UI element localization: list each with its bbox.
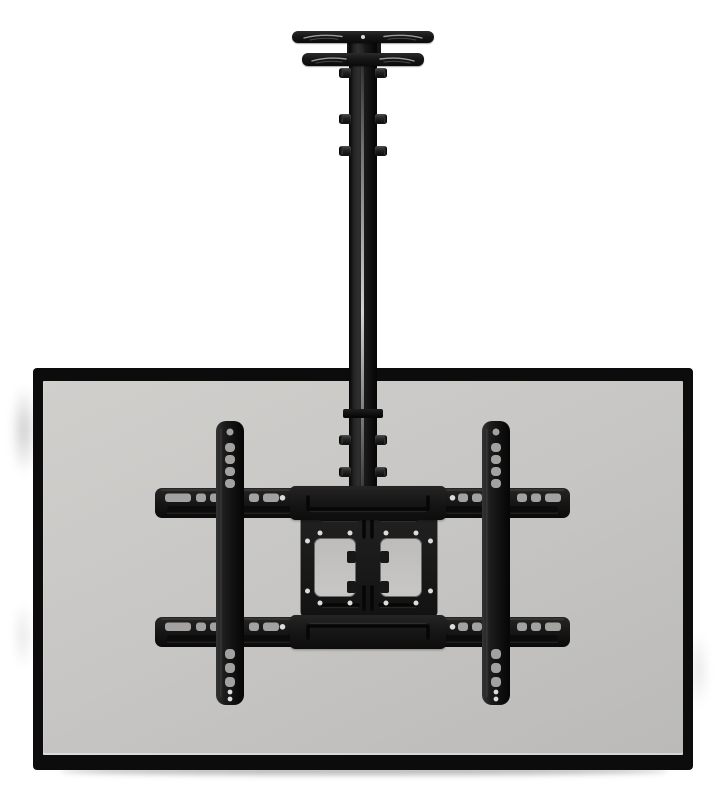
ceiling-screw-hole [361, 35, 365, 39]
bracket-rail-left [216, 421, 244, 705]
crossbar-center-cover-upper [290, 486, 446, 520]
pole-bolt [339, 146, 351, 156]
bracket-rail-right [482, 421, 510, 705]
pole-bolt [375, 114, 387, 124]
pole-bolt [339, 68, 351, 78]
window-tab [380, 581, 389, 593]
cover-groove-graphic [290, 486, 446, 520]
pole-clamp-collar [343, 409, 383, 418]
vesa-adapter-plate [300, 505, 438, 619]
window-tab [347, 551, 356, 563]
window-tab [380, 551, 389, 563]
ceiling-arm-slot-glints [302, 53, 424, 66]
crossbar-center-cover-lower [290, 615, 446, 649]
pole-bolt [375, 146, 387, 156]
pole-bolt [375, 68, 387, 78]
pole-bolt [375, 435, 387, 445]
rail-graphic [216, 421, 244, 705]
pole-bolt [339, 114, 351, 124]
pole-highlight [361, 42, 364, 506]
ceiling-plate-arm-lower [302, 53, 424, 66]
pole-bolt [375, 467, 387, 477]
rail-graphic [482, 421, 510, 705]
pole-bolt [339, 435, 351, 445]
pole-bolt [339, 467, 351, 477]
drop-pole [349, 42, 377, 506]
window-tab [347, 581, 356, 593]
vesa-plate-graphic [300, 505, 438, 619]
soft-shadow-left-lower [14, 600, 32, 670]
product-image [0, 0, 725, 803]
cover-groove-graphic [290, 615, 446, 649]
